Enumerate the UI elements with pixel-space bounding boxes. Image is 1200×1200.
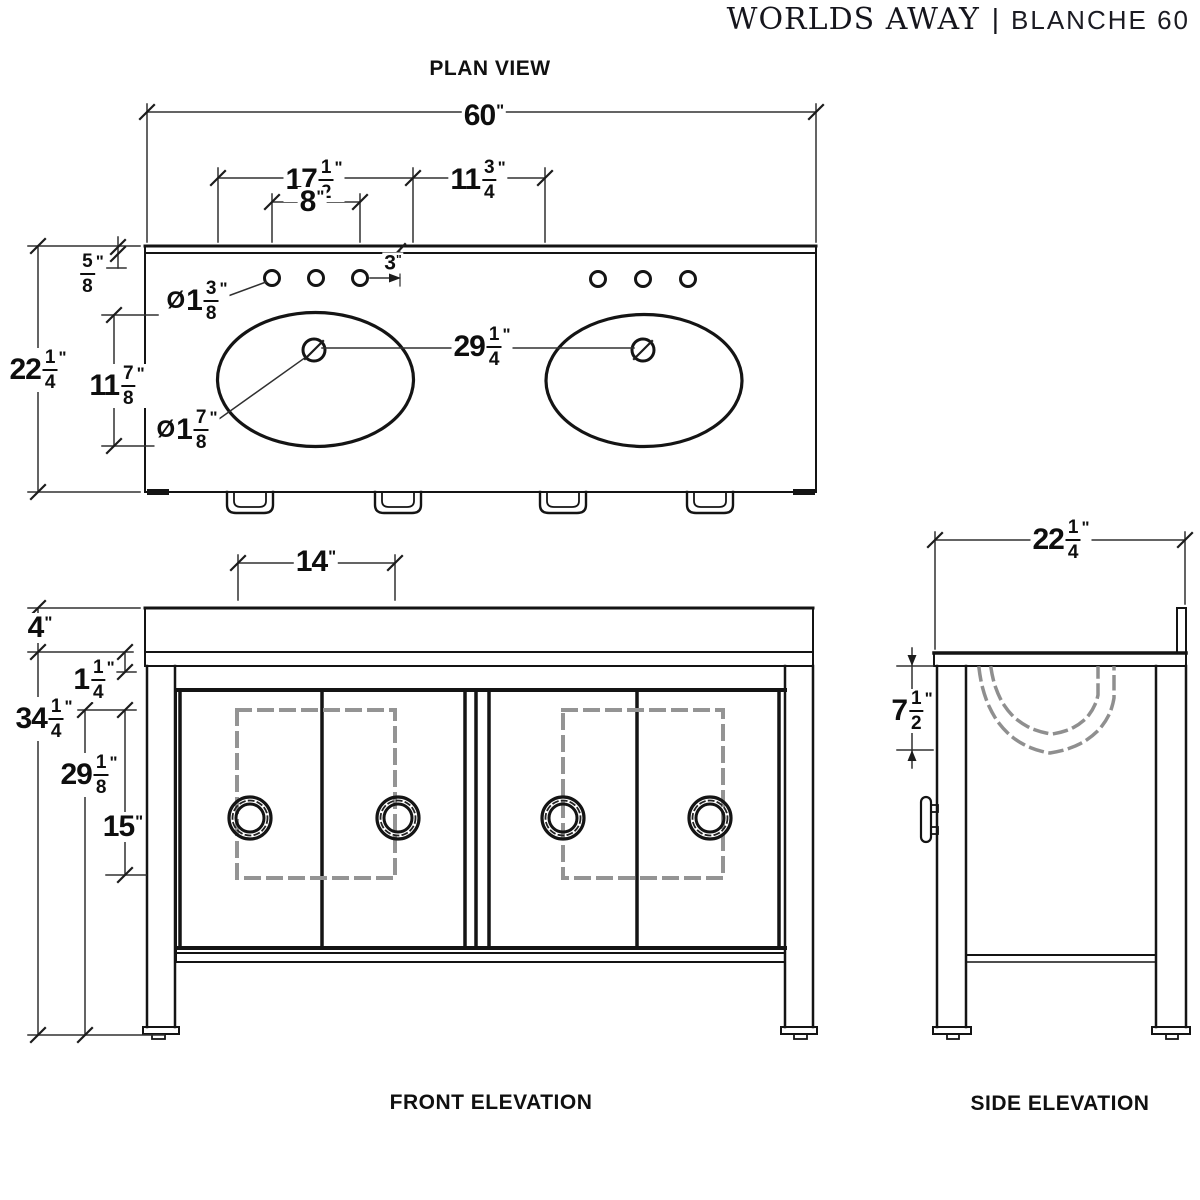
plan-view xyxy=(145,246,816,513)
front-elevation xyxy=(143,608,817,1039)
dim-plan-counter-edge: 58" xyxy=(76,252,106,296)
side-countertop xyxy=(934,653,1186,666)
brand-separator: | xyxy=(992,3,999,35)
dim-front-counter-height: 4" xyxy=(26,613,55,643)
plan-sink-right xyxy=(546,315,742,447)
dim-plan-hole-offset: 3" xyxy=(382,253,403,274)
front-door-panels-dashed xyxy=(237,710,723,878)
product-name: BLANCHE 60 xyxy=(1011,5,1190,36)
title-bar: WORLDS AWAY | BLANCHE 60 xyxy=(727,2,1190,37)
plan-countertop-outline xyxy=(145,246,816,495)
dim-plan-drain-hole-diameter: Ø178" xyxy=(155,408,220,452)
side-sink-bowl-dashed xyxy=(979,668,1114,753)
dim-side-overall-depth: 2214" xyxy=(1030,518,1091,562)
dim-plan-overall-width: 60" xyxy=(462,101,506,131)
plan-view-title: PLAN VIEW xyxy=(429,57,550,81)
dim-plan-overall-depth: 2214" xyxy=(7,348,68,392)
side-backsplash xyxy=(1177,608,1186,653)
front-dimension-ticks xyxy=(31,556,402,1042)
dim-front-overall-height: 3414" xyxy=(13,697,74,741)
plan-faucet-holes xyxy=(265,271,696,287)
dim-plan-between-sinks: 1134" xyxy=(448,158,507,202)
dim-plan-sink-cutout-depth: 1178" xyxy=(87,364,146,408)
side-bottom-rail xyxy=(966,955,1156,962)
dim-front-base-height: 2918" xyxy=(58,753,119,797)
dim-plan-sink-center-spacing: 2914" xyxy=(451,325,512,369)
front-elevation-title: FRONT ELEVATION xyxy=(390,1091,593,1115)
side-elevation xyxy=(921,608,1190,1039)
technical-drawing xyxy=(0,0,1200,1200)
side-door-pull xyxy=(921,797,938,842)
side-legs xyxy=(933,666,1190,1039)
dim-plan-faucet-hole-diameter: Ø138" xyxy=(165,279,230,323)
dim-front-panel-height: 15" xyxy=(101,812,145,842)
dim-front-door-panel-width: 14" xyxy=(294,547,338,577)
dim-plan-faucet-spread: 8" xyxy=(298,187,327,217)
dim-side-bowl-depth: 712" xyxy=(889,689,934,733)
side-elevation-title: SIDE ELEVATION xyxy=(971,1092,1150,1116)
front-countertop xyxy=(145,608,813,666)
plan-dimensions xyxy=(28,104,823,499)
brand-name: WORLDS AWAY xyxy=(727,2,980,37)
plan-dimension-ticks xyxy=(31,105,823,499)
front-legs xyxy=(143,666,817,1039)
plan-ring-pulls xyxy=(227,492,733,513)
front-dimensions xyxy=(28,555,402,1042)
spec-sheet: WORLDS AWAY | BLANCHE 60 PLAN VIEW FRONT… xyxy=(0,0,1200,1200)
front-ring-pulls xyxy=(229,797,731,839)
plan-sink-left xyxy=(218,313,414,447)
dim-front-apron-height: 114" xyxy=(71,658,116,702)
